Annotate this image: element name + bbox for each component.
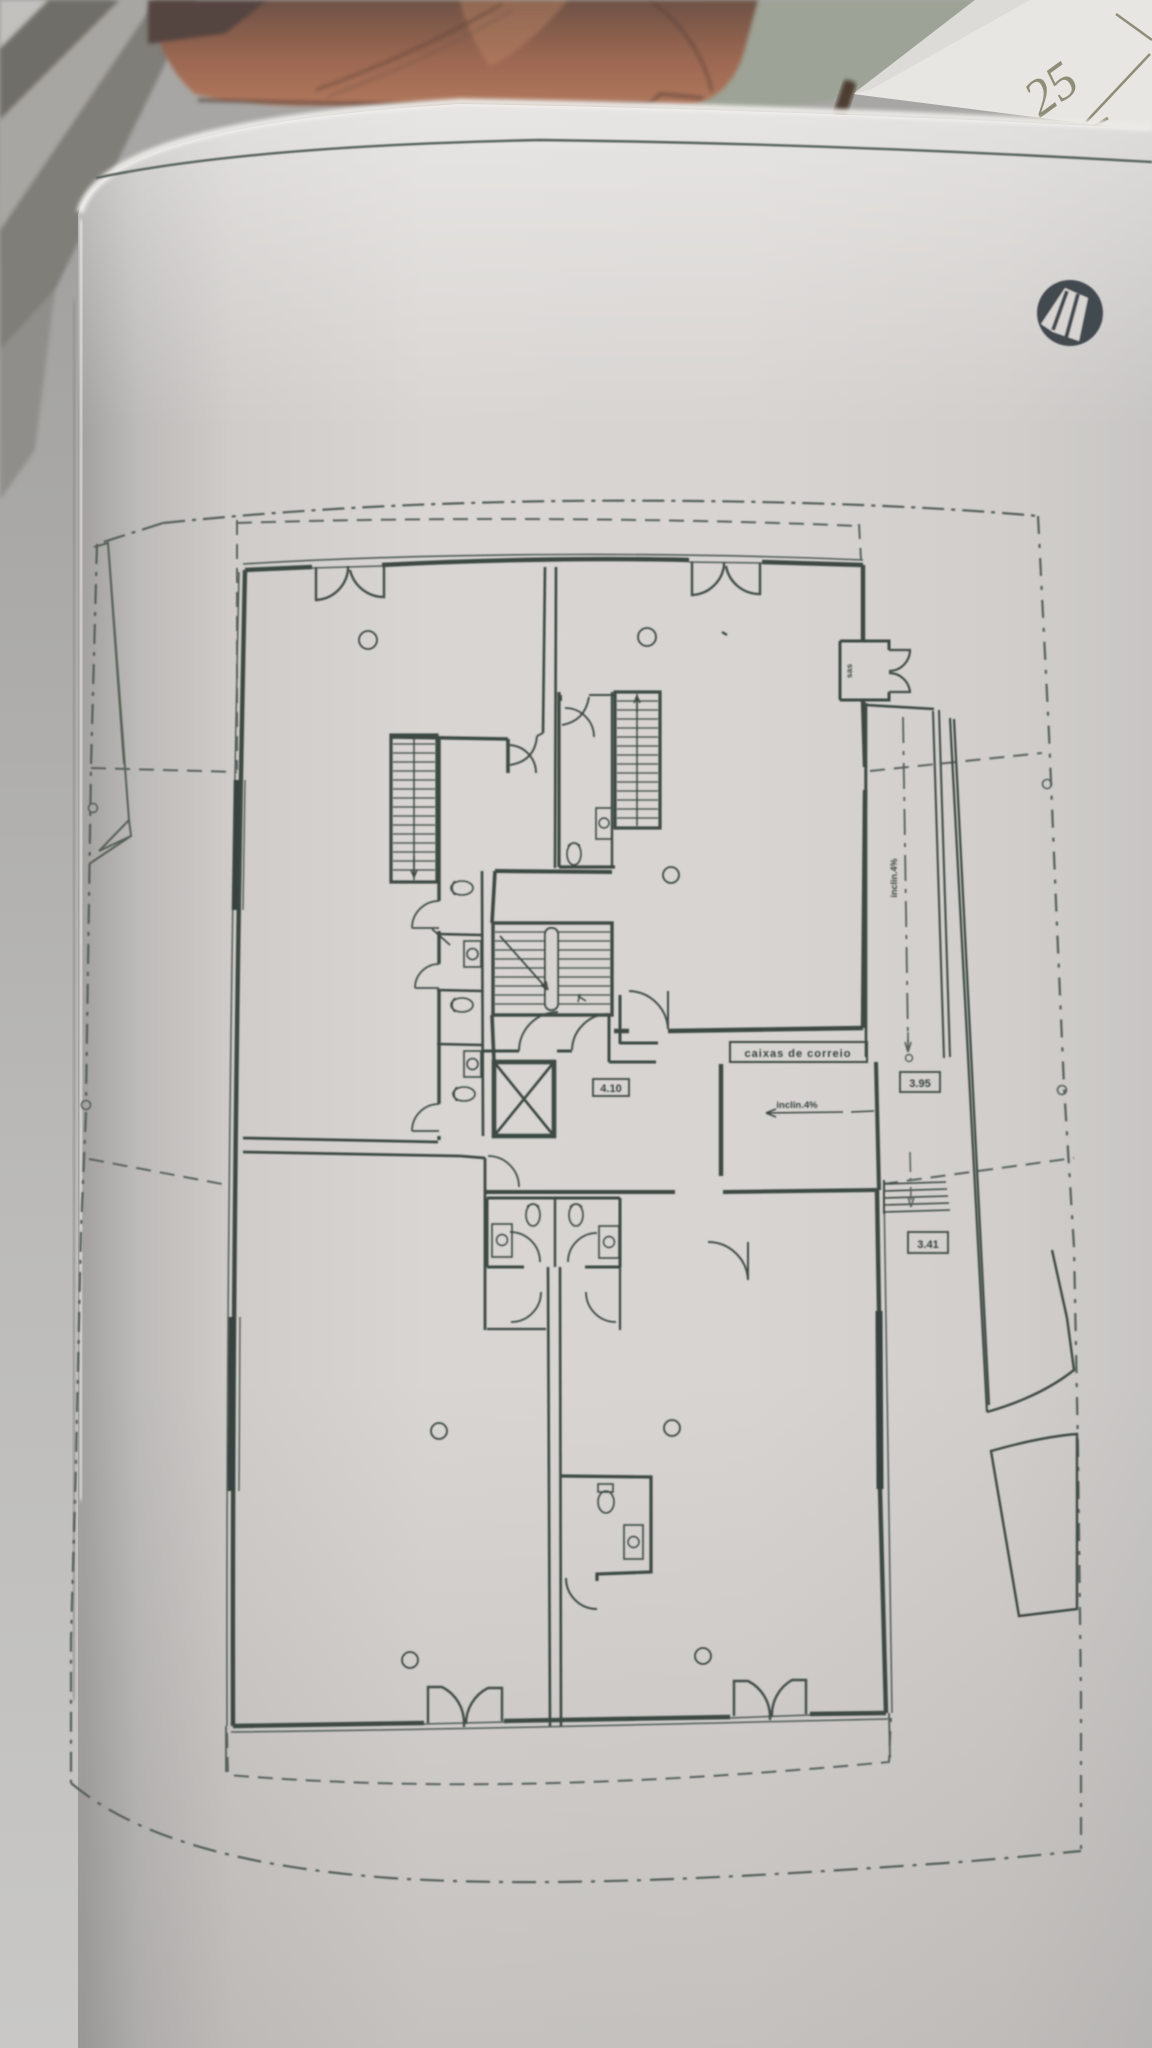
svg-text:inclin.4%: inclin.4% bbox=[889, 858, 899, 897]
svg-text:4.10: 4.10 bbox=[600, 1083, 621, 1095]
svg-text:3.41: 3.41 bbox=[917, 1239, 938, 1251]
svg-text:inclin.4%: inclin.4% bbox=[776, 1100, 818, 1111]
svg-text:sas: sas bbox=[844, 664, 854, 678]
svg-text:caixas de correio: caixas de correio bbox=[745, 1048, 852, 1060]
svg-text:3.95: 3.95 bbox=[909, 1078, 930, 1090]
